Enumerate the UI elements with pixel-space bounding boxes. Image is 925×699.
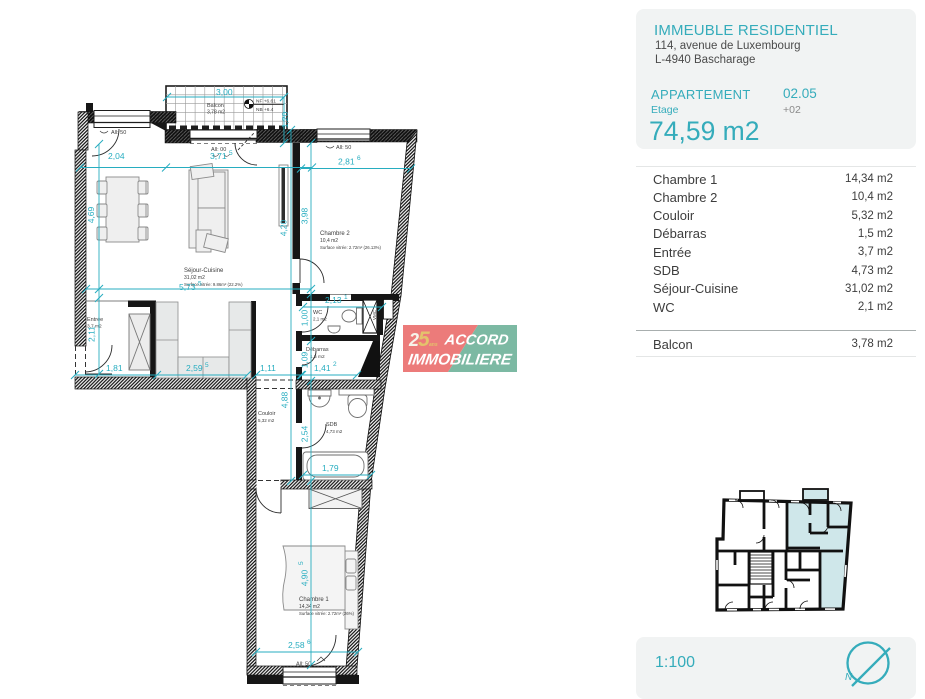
svg-text:3,78 m2: 3,78 m2 [207,110,225,116]
svg-text:1,09: 1,09 [300,351,310,368]
svg-text:5: 5 [229,150,233,157]
svg-text:1,79: 1,79 [322,463,339,473]
svg-text:1,00: 1,00 [300,309,310,326]
svg-text:ACCORD: ACCORD [443,333,510,349]
svg-text:NB +6.4: NB +6.4 [256,107,274,113]
svg-text:Couloir: Couloir [258,411,276,417]
svg-text:2: 2 [333,361,337,368]
svg-text:2,54: 2,54 [300,425,310,442]
svg-text:SDB: SDB [326,422,338,428]
svg-text:1: 1 [344,294,348,301]
svg-text:Balcon: Balcon [207,103,224,109]
svg-text:3,71: 3,71 [210,151,227,161]
svg-text:Chambre 2: Chambre 2 [320,231,350,237]
svg-text:WC: WC [313,310,322,316]
svg-text:6: 6 [307,639,311,646]
svg-text:5,73: 5,73 [179,282,196,292]
svg-text:1,20: 1,20 [280,111,290,128]
svg-text:4,73 m2: 4,73 m2 [326,429,343,434]
svg-text:1,11: 1,11 [260,363,276,373]
svg-text:1,41: 1,41 [314,363,331,373]
svg-text:2,11: 2,11 [87,326,97,342]
svg-text:4,88: 4,88 [280,391,290,408]
svg-text:5: 5 [205,362,209,369]
svg-text:5,32 m2: 5,32 m2 [258,418,275,423]
svg-text:Entrée: Entrée [87,317,103,323]
svg-text:14,34 m2: 14,34 m2 [299,604,320,610]
svg-text:10,4 m2: 10,4 m2 [320,238,338,244]
svg-text:All: 50: All: 50 [336,145,351,151]
svg-text:2,59: 2,59 [186,363,203,373]
svg-text:2,13: 2,13 [325,295,342,305]
svg-text:Surface vitrée: 2.72m² (26%): Surface vitrée: 2.72m² (26%) [299,611,354,616]
svg-text:2,81: 2,81 [338,157,355,167]
svg-text:5: 5 [298,561,305,565]
svg-text:3,00: 3,00 [216,87,233,97]
svg-text:2,1 m2: 2,1 m2 [313,317,327,322]
svg-text:IMMOBILIERE: IMMOBILIERE [407,352,513,369]
svg-text:N: N [845,672,853,683]
svg-text:5: 5 [198,281,202,288]
svg-text:4,20: 4,20 [279,219,289,236]
svg-text:NF +6.61: NF +6.61 [256,99,276,105]
svg-text:Chambre 1: Chambre 1 [299,597,329,603]
svg-text:31,02 m2: 31,02 m2 [184,275,205,281]
svg-text:1,81: 1,81 [106,363,123,373]
svg-text:3,98: 3,98 [300,207,310,224]
svg-text:Séjour-Cuisine: Séjour-Cuisine [184,268,224,274]
svg-text:2,58: 2,58 [288,640,305,650]
svg-text:2,04: 2,04 [108,151,125,161]
svg-text:1,5 m2: 1,5 m2 [310,354,325,360]
svg-text:Surface vitrée: 2.72m² (26.13%: Surface vitrée: 2.72m² (26.13%) [320,245,381,250]
svg-text:4,69: 4,69 [86,206,96,223]
svg-text:VMC: VMC [372,309,377,320]
svg-text:6: 6 [357,155,361,162]
svg-text:4,90: 4,90 [300,569,310,586]
svg-text:ans: ans [429,342,438,348]
